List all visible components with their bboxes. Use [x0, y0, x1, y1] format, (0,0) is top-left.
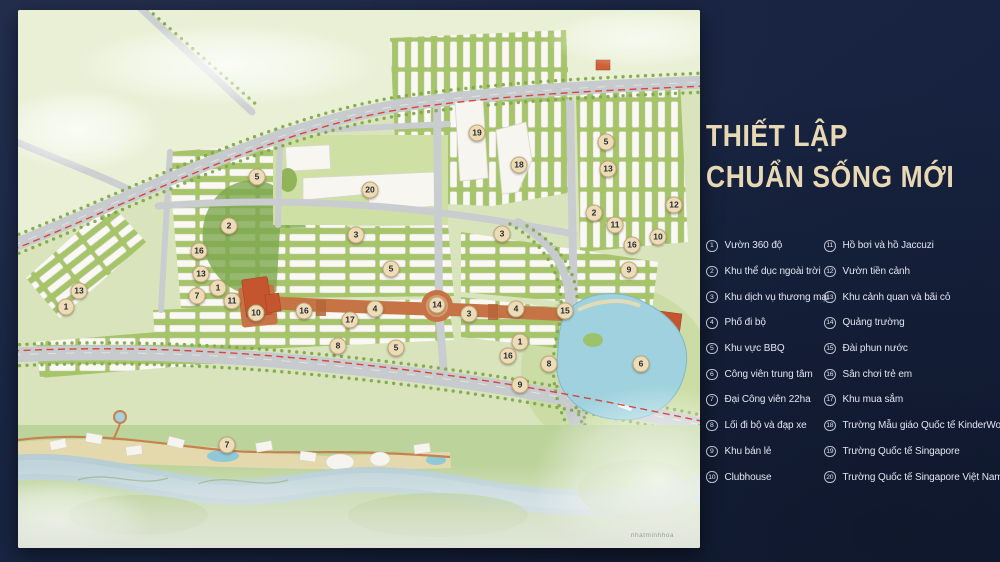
map-marker-1: 1 [58, 299, 75, 316]
map-marker-13: 13 [193, 266, 210, 283]
map-marker-16: 16 [624, 237, 641, 254]
legend-item-number: 6 [706, 369, 718, 381]
legend-item-number: 2 [706, 266, 718, 278]
map-marker-9: 9 [621, 262, 638, 279]
legend-item-label: Khu mua sắm [843, 394, 904, 405]
legend-item-number: 19 [824, 446, 836, 458]
legend-item-7: 7Đại Công viên 22ha [706, 387, 829, 413]
legend-item-label: Đại Công viên 22ha [725, 394, 811, 405]
map-marker-8: 8 [330, 338, 347, 355]
map-marker-11: 11 [224, 293, 241, 310]
legend-item-label: Khu bán lẻ [725, 446, 772, 457]
legend-item-number: 8 [706, 420, 718, 432]
legend-item-9: 9Khu bán lẻ [706, 439, 829, 465]
legend-item-number: 16 [824, 369, 836, 381]
map-marker-16: 16 [191, 243, 208, 260]
legend-item-label: Khu dịch vụ thương mại [725, 292, 829, 303]
legend-item-4: 4Phố đi bộ [706, 310, 829, 336]
legend-item-label: Trường Quốc tế Singapore [843, 446, 960, 457]
map-marker-layer: 1315216131711102019183351617485145132111… [18, 10, 700, 548]
legend-item-number: 12 [824, 266, 836, 278]
legend-item-label: Khu thể dục ngoài trời [725, 266, 821, 277]
legend-item-number: 17 [824, 394, 836, 406]
map-marker-13: 13 [600, 161, 617, 178]
legend-item-number: 20 [824, 471, 836, 483]
legend-item-1: 1Vườn 360 độ [706, 233, 829, 259]
legend-item-label: Quảng trường [843, 317, 905, 328]
map-marker-10: 10 [248, 305, 265, 322]
legend-item-number: 15 [824, 343, 836, 355]
map-marker-20: 20 [362, 182, 379, 199]
legend-item-3: 3Khu dịch vụ thương mại [706, 284, 829, 310]
map-marker-7: 7 [189, 288, 206, 305]
map-marker-11: 11 [607, 217, 624, 234]
legend-item-number: 3 [706, 291, 718, 303]
legend-item-label: Khu cảnh quan và bãi cỏ [843, 292, 951, 303]
map-marker-1: 1 [210, 280, 227, 297]
legend-item-14: 14Quảng trường [824, 310, 1000, 336]
map-marker-15: 15 [557, 303, 574, 320]
map-marker-2: 2 [221, 218, 238, 235]
legend-col-1: 1Vườn 360 độ2Khu thể dục ngoài trời3Khu … [706, 233, 829, 490]
legend-item-11: 11Hồ bơi và hồ Jaccuzi [824, 233, 1000, 259]
map-marker-8: 8 [541, 356, 558, 373]
legend-item-label: Vườn 360 độ [725, 240, 783, 251]
map-marker-18: 18 [511, 157, 528, 174]
legend-item-8: 8Lối đi bộ và đạp xe [706, 413, 829, 439]
map-marker-14: 14 [429, 297, 446, 314]
title-line-1: THIẾT LẬP [706, 115, 954, 156]
legend-item-2: 2Khu thể dục ngoài trời [706, 259, 829, 285]
map-marker-4: 4 [508, 301, 525, 318]
legend-item-number: 7 [706, 394, 718, 406]
map-marker-13: 13 [71, 283, 88, 300]
map-marker-5: 5 [249, 169, 266, 186]
legend-item-number: 14 [824, 317, 836, 329]
legend-item-13: 13Khu cảnh quan và bãi cỏ [824, 284, 1000, 310]
legend-item-number: 4 [706, 317, 718, 329]
legend-item-number: 13 [824, 291, 836, 303]
map-marker-6: 6 [633, 356, 650, 373]
masterplan-map: 1315216131711102019183351617485145132111… [18, 10, 700, 548]
map-marker-16: 16 [500, 348, 517, 365]
legend-item-label: Khu vực BBQ [725, 343, 785, 354]
legend-item-5: 5Khu vực BBQ [706, 336, 829, 362]
legend-item-label: Clubhouse [725, 472, 772, 483]
map-marker-4: 4 [367, 301, 384, 318]
map-marker-2: 2 [586, 205, 603, 222]
legend-item-number: 9 [706, 446, 718, 458]
legend-item-number: 10 [706, 471, 718, 483]
map-marker-16: 16 [296, 303, 313, 320]
map-marker-3: 3 [494, 226, 511, 243]
legend-item-label: Phố đi bộ [725, 317, 766, 328]
map-marker-12: 12 [666, 197, 683, 214]
legend-item-12: 12Vườn tiền cảnh [824, 259, 1000, 285]
legend-item-label: Sân chơi trẻ em [843, 369, 913, 380]
legend-item-19: 19Trường Quốc tế Singapore [824, 439, 1000, 465]
legend-item-10: 10Clubhouse [706, 464, 829, 490]
legend-item-label: Trường Mẫu giáo Quốc tế KinderWorld [843, 420, 1000, 431]
legend-item-label: Lối đi bộ và đạp xe [725, 420, 807, 431]
legend-item-17: 17Khu mua sắm [824, 387, 1000, 413]
legend-item-label: Đài phun nước [843, 343, 908, 354]
legend-item-label: Hồ bơi và hồ Jaccuzi [843, 240, 934, 251]
legend-item-label: Công viên trung tâm [725, 369, 813, 380]
legend-item-number: 18 [824, 420, 836, 432]
map-marker-10: 10 [650, 229, 667, 246]
page-title: THIẾT LẬP CHUẨN SỐNG MỚI [706, 115, 954, 197]
legend-item-15: 15Đài phun nước [824, 336, 1000, 362]
legend-item-number: 11 [824, 240, 836, 252]
map-watermark: nhatminhhoa [631, 532, 674, 539]
map-marker-7: 7 [219, 437, 236, 454]
legend-item-number: 5 [706, 343, 718, 355]
map-marker-3: 3 [348, 227, 365, 244]
page: 1315216131711102019183351617485145132111… [0, 0, 1000, 562]
map-marker-1: 1 [512, 334, 529, 351]
legend-item-16: 16Sân chơi trẻ em [824, 361, 1000, 387]
title-line-2: CHUẨN SỐNG MỚI [706, 156, 954, 197]
map-marker-19: 19 [469, 125, 486, 142]
map-marker-5: 5 [598, 134, 615, 151]
legend-item-number: 1 [706, 240, 718, 252]
legend-item-label: Trường Quốc tế Singapore Việt Nam [843, 472, 1000, 483]
legend-item-label: Vườn tiền cảnh [843, 266, 910, 277]
map-marker-17: 17 [342, 312, 359, 329]
legend-col-2: 11Hồ bơi và hồ Jaccuzi12Vườn tiền cảnh13… [824, 233, 1000, 490]
legend-item-20: 20Trường Quốc tế Singapore Việt Nam [824, 464, 1000, 490]
legend-item-6: 6Công viên trung tâm [706, 361, 829, 387]
legend-item-18: 18Trường Mẫu giáo Quốc tế KinderWorld [824, 413, 1000, 439]
map-marker-9: 9 [512, 377, 529, 394]
map-marker-5: 5 [388, 340, 405, 357]
map-marker-5: 5 [383, 261, 400, 278]
map-marker-3: 3 [461, 306, 478, 323]
